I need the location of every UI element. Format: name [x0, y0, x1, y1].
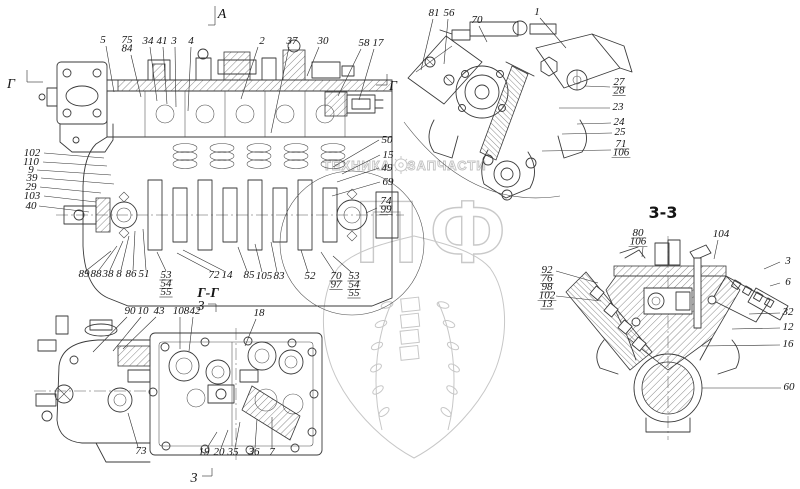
section-g-g-callouts: 901043108421873192035367 — [93, 305, 275, 458]
callout-72: 72 — [209, 269, 221, 281]
callout-106: 106 — [630, 236, 647, 248]
callout-32: 32 — [782, 306, 795, 318]
callout-108: 108 — [173, 305, 190, 317]
callout-41: 41 — [157, 35, 168, 47]
callout-6: 6 — [785, 276, 791, 288]
watermark: ТЕХНИКА ЗАПЧАСТИ ПФ — [323, 156, 517, 458]
wheat-right-icon — [436, 301, 460, 430]
callout-23: 23 — [613, 101, 625, 113]
callout-84: 84 — [122, 43, 134, 55]
callout-38: 38 — [102, 268, 115, 280]
watermark-big-letters: ПФ — [355, 182, 517, 281]
callout-85: 85 — [244, 269, 256, 281]
callout-13: 13 — [542, 298, 554, 310]
callout-10: 10 — [138, 305, 150, 317]
watermark-right-text: ЗАПЧАСТИ — [407, 158, 486, 173]
callout-97: 97 — [331, 279, 343, 291]
callout-60: 60 — [784, 381, 796, 393]
callout-36: 36 — [248, 446, 261, 458]
callout-20: 20 — [214, 446, 226, 458]
section-marker-3-3: 3-3 — [649, 203, 678, 222]
callout-81: 81 — [429, 7, 440, 19]
callout-4: 4 — [188, 35, 194, 47]
callout-105: 105 — [256, 270, 273, 282]
callout-104: 104 — [713, 228, 730, 240]
wheat-left-icon — [369, 301, 393, 430]
callout-55: 55 — [349, 287, 361, 299]
callout-69: 69 — [383, 176, 395, 188]
callout-25: 25 — [615, 126, 627, 138]
callout-56: 56 — [444, 7, 456, 19]
callout-70: 70 — [472, 14, 484, 26]
callout-86: 86 — [126, 268, 138, 280]
callout-43: 43 — [154, 305, 166, 317]
callout-8: 8 — [116, 268, 122, 280]
callout-30: 30 — [317, 35, 330, 47]
callout-7: 7 — [269, 446, 275, 458]
callout-51: 51 — [139, 268, 150, 280]
gg-view-drawing — [34, 316, 322, 462]
section-label: 3 — [190, 471, 198, 486]
callout-16: 16 — [783, 338, 795, 350]
callout-90: 90 — [125, 305, 137, 317]
callout-15: 15 — [383, 149, 395, 161]
section-label: 3 — [197, 299, 205, 314]
callout-12: 12 — [783, 321, 795, 333]
callout-34: 34 — [142, 35, 155, 47]
section-label: Г — [388, 79, 398, 94]
callout-1: 1 — [534, 6, 540, 18]
callout-106: 106 — [613, 147, 630, 159]
section-marker-3: 3 — [190, 468, 213, 486]
callout-83: 83 — [274, 270, 286, 282]
callout-89: 89 — [79, 268, 91, 280]
section-label: Г — [6, 77, 16, 92]
callout-3: 3 — [784, 255, 791, 267]
shield-blocks — [395, 297, 425, 360]
callout-73: 73 — [136, 445, 148, 457]
callout-17: 17 — [373, 37, 385, 49]
front-view-drawing — [404, 21, 632, 200]
callout-52: 52 — [305, 270, 317, 282]
callout-55: 55 — [161, 286, 173, 298]
zz-view-drawing — [566, 236, 788, 440]
callout-28: 28 — [614, 85, 626, 97]
callout-5: 5 — [100, 34, 106, 46]
callout-19: 19 — [199, 446, 211, 458]
callout-40: 40 — [26, 200, 38, 212]
section-marker-3: 3 — [197, 299, 217, 314]
section-marker-A: A — [208, 6, 227, 25]
callout-18: 18 — [254, 307, 266, 319]
section-label: A — [217, 7, 227, 22]
pump-assembly-diagram: ТЕХНИКА ЗАПЧАСТИ ПФ — [0, 0, 800, 489]
callout-37: 37 — [286, 35, 299, 47]
callout-14: 14 — [222, 269, 234, 281]
callout-3: 3 — [170, 35, 177, 47]
callout-49: 49 — [382, 162, 394, 174]
callout-99: 99 — [381, 204, 393, 216]
front-view-callouts: 8156701272823242571106 — [421, 6, 630, 159]
callout-2: 2 — [259, 35, 265, 47]
section-marker-Г: Г — [6, 70, 43, 92]
callout-58: 58 — [359, 37, 371, 49]
spring-row — [173, 144, 345, 169]
catalog-diagram-page: ТЕХНИКА ЗАПЧАСТИ ПФ — [0, 0, 800, 489]
callout-88: 88 — [91, 268, 103, 280]
section-label: 3-3 — [649, 203, 678, 222]
callout-50: 50 — [382, 134, 394, 146]
callout-35: 35 — [227, 446, 240, 458]
